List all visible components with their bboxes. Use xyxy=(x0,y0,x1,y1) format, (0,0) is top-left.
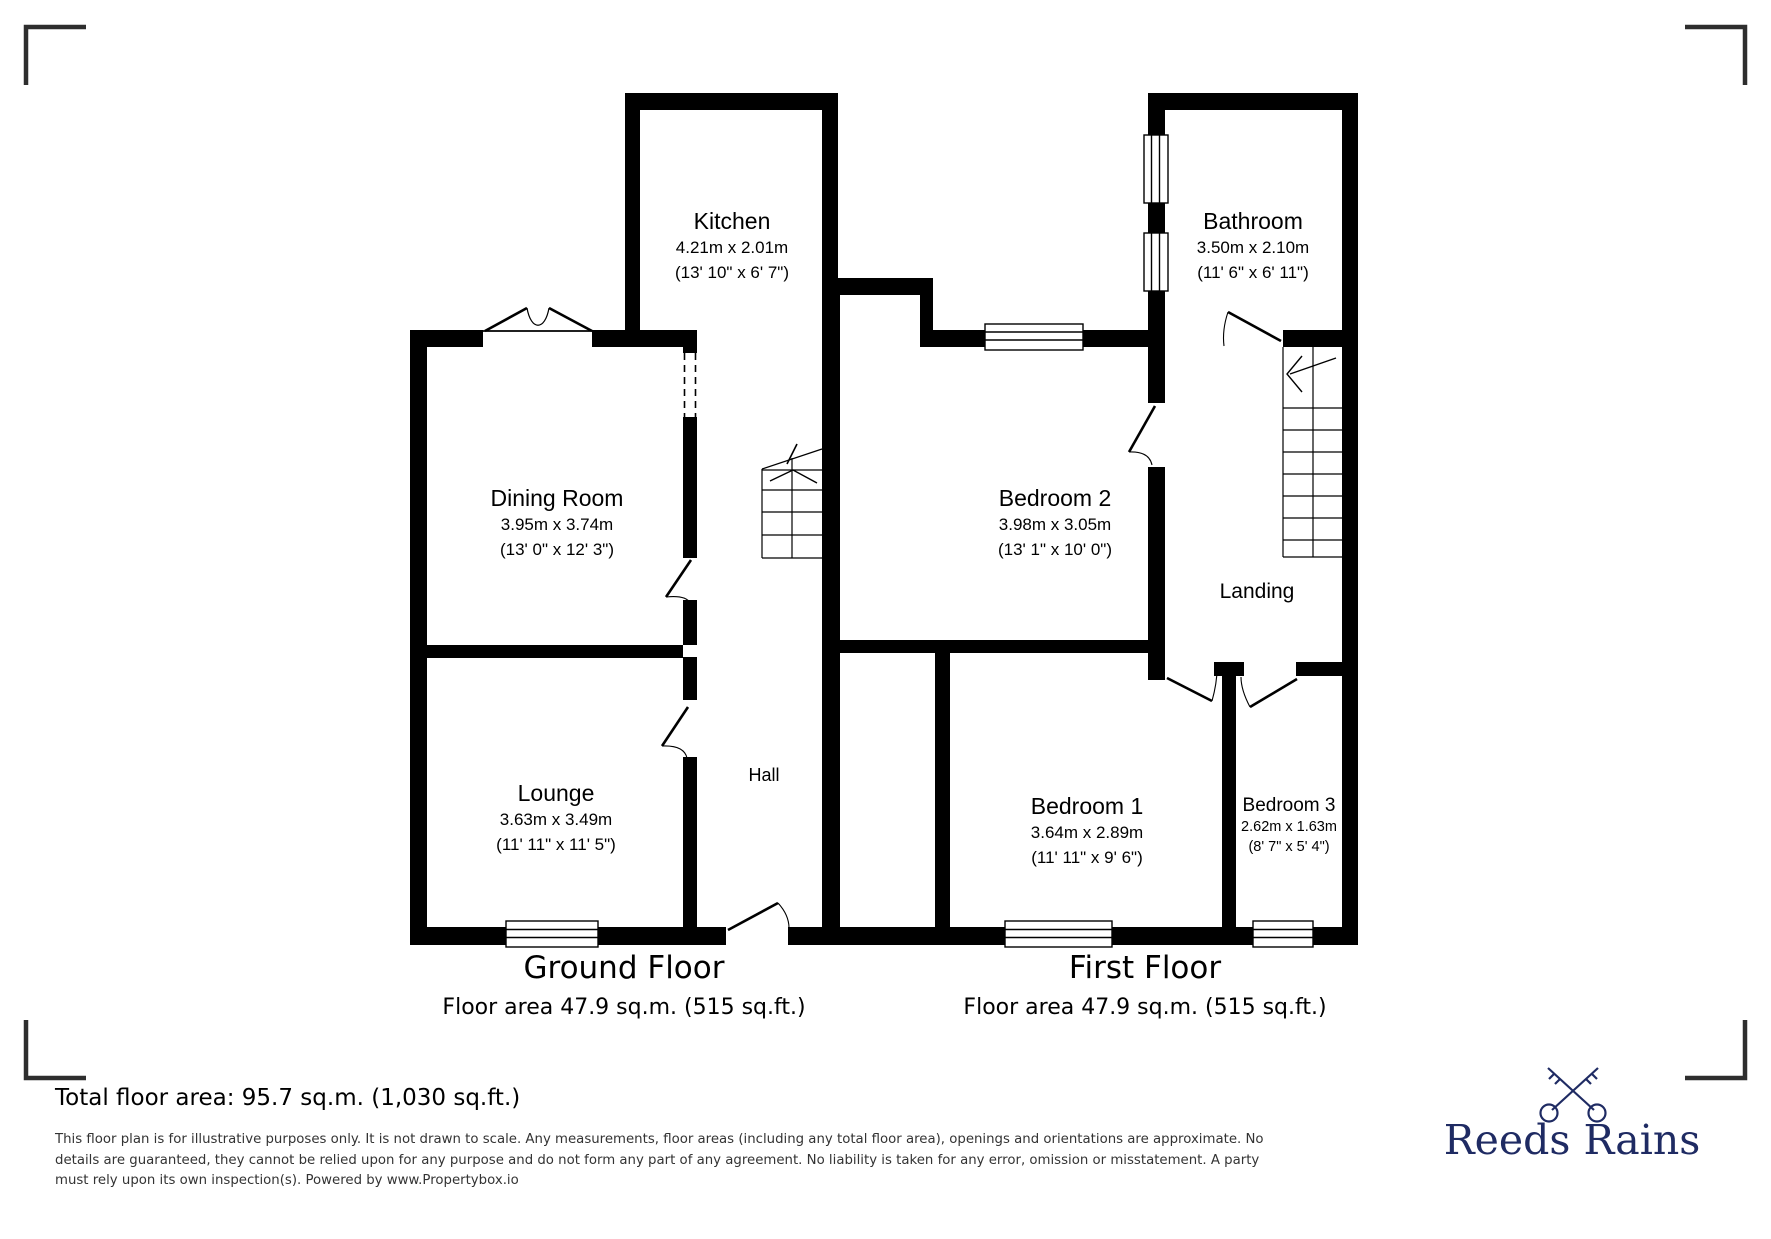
room-dim-imperial: (8' 7" x 5' 4") xyxy=(1179,837,1399,857)
ground-windows xyxy=(506,921,598,947)
disclaimer-line-1: This floor plan is for illustrative purp… xyxy=(55,1130,1264,1151)
room-label-dining-room: Dining Room 3.95m x 3.74m (13' 0" x 12' … xyxy=(407,484,707,562)
room-dim-imperial: (13' 1" x 10' 0") xyxy=(905,537,1205,562)
ground-floor-area: Floor area 47.9 sq.m. (515 sq.ft.) xyxy=(374,995,874,1020)
room-label-lounge: Lounge 3.63m x 3.49m (11' 11" x 11' 5") xyxy=(406,779,706,857)
room-label-landing: Landing xyxy=(1182,578,1332,606)
crop-marks xyxy=(26,27,1745,1078)
crossed-keys-icon xyxy=(1541,1068,1606,1122)
floorplan-page: Kitchen 4.21m x 2.01m (13' 10" x 6' 7") … xyxy=(0,0,1771,1239)
room-name: Hall xyxy=(689,761,839,789)
lounge-window xyxy=(506,921,598,947)
first-stairs xyxy=(1283,347,1342,557)
room-label-kitchen: Kitchen 4.21m x 2.01m (13' 10" x 6' 7") xyxy=(582,207,882,285)
room-dim-metric: 3.95m x 3.74m xyxy=(407,512,707,537)
stairs-up-arrow xyxy=(770,470,817,483)
room-label-hall: Hall xyxy=(689,761,839,789)
disclaimer-text: This floor plan is for illustrative purp… xyxy=(55,1130,1264,1192)
room-dim-imperial: (11' 6" x 6' 11") xyxy=(1103,260,1403,285)
room-name: Bedroom 3 xyxy=(1179,795,1399,817)
first-floor-area: Floor area 47.9 sq.m. (515 sq.ft.) xyxy=(895,995,1395,1020)
bedroom3-door xyxy=(1241,677,1297,707)
disclaimer-line-3: must rely upon its own inspection(s). Po… xyxy=(55,1171,1264,1192)
first-floor-title: First Floor xyxy=(895,950,1395,986)
room-dim-metric: 4.21m x 2.01m xyxy=(582,235,882,260)
room-name: Kitchen xyxy=(582,207,882,235)
room-label-bedroom-2: Bedroom 2 3.98m x 3.05m (13' 1" x 10' 0"… xyxy=(905,484,1205,562)
brand-logo-text: Reeds Rains xyxy=(1441,1116,1703,1164)
lounge-door xyxy=(662,707,688,758)
bathroom-door xyxy=(1224,312,1282,346)
bedroom1-door xyxy=(1167,669,1217,701)
room-name: Bathroom xyxy=(1103,207,1403,235)
room-dim-metric: 2.62m x 1.63m xyxy=(1179,817,1399,837)
room-dim-metric: 3.50m x 2.10m xyxy=(1103,235,1403,260)
crop-mark-top-right xyxy=(1685,27,1745,85)
bathroom-window-upper xyxy=(1144,135,1168,203)
room-label-bedroom-3: Bedroom 3 2.62m x 1.63m (8' 7" x 5' 4") xyxy=(1179,795,1399,857)
stairs-down-arrow xyxy=(1287,356,1302,392)
room-dim-metric: 3.98m x 3.05m xyxy=(905,512,1205,537)
room-label-bathroom: Bathroom 3.50m x 2.10m (11' 6" x 6' 11") xyxy=(1103,207,1403,285)
room-dim-metric: 3.63m x 3.49m xyxy=(406,807,706,832)
bedroom2-window xyxy=(985,324,1083,350)
front-door-opening xyxy=(726,924,788,948)
room-name: Landing xyxy=(1182,578,1332,606)
bedroom1-window xyxy=(1005,921,1112,947)
room-name: Dining Room xyxy=(407,484,707,512)
bay-window xyxy=(483,308,592,331)
bedroom3-window xyxy=(1253,921,1313,947)
room-dim-imperial: (13' 0" x 12' 3") xyxy=(407,537,707,562)
bedroom2-door xyxy=(1129,406,1155,465)
dining-room-door xyxy=(666,560,691,603)
disclaimer-line-2: details are guaranteed, they cannot be r… xyxy=(55,1151,1264,1172)
floorplan-drawing xyxy=(0,0,1771,1239)
room-name: Lounge xyxy=(406,779,706,807)
ground-stairs xyxy=(762,444,822,558)
room-dim-imperial: (11' 11" x 11' 5") xyxy=(406,832,706,857)
dining-kitchen-opening xyxy=(685,353,696,417)
total-floor-area: Total floor area: 95.7 sq.m. (1,030 sq.f… xyxy=(55,1085,520,1111)
room-dim-imperial: (13' 10" x 6' 7") xyxy=(582,260,882,285)
crop-mark-bottom-right xyxy=(1685,1020,1745,1078)
crop-mark-top-left xyxy=(26,27,86,85)
crop-mark-bottom-left xyxy=(26,1020,86,1078)
room-name: Bedroom 2 xyxy=(905,484,1205,512)
ground-floor-title: Ground Floor xyxy=(374,950,874,986)
